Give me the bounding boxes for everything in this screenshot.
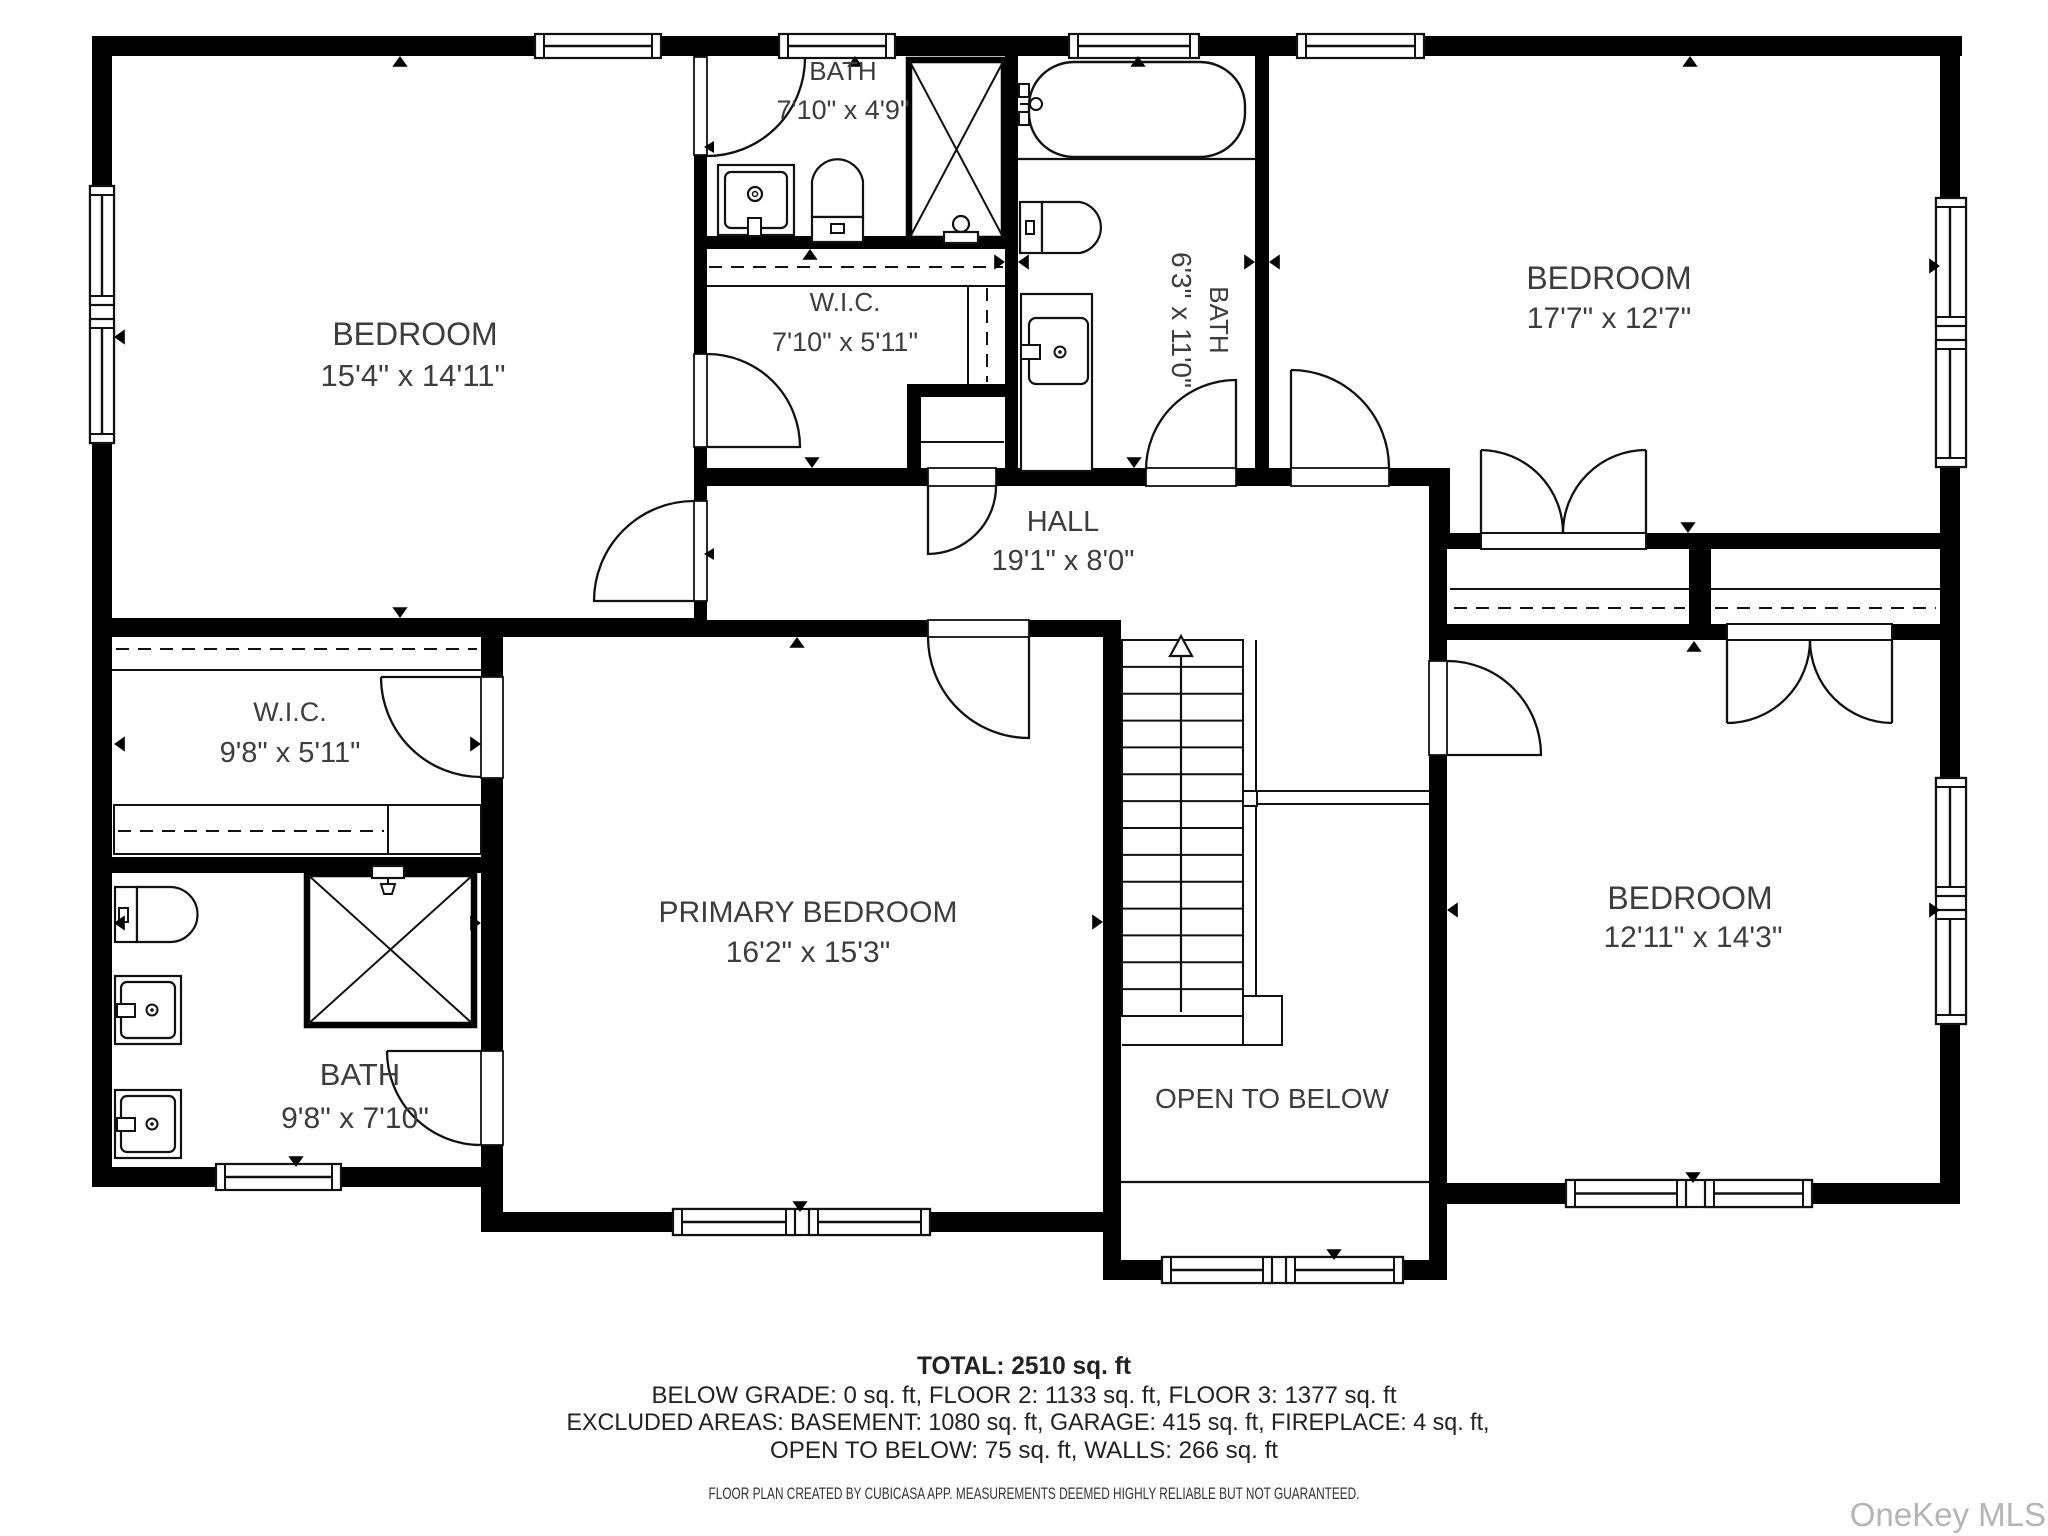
svg-text:OPEN TO BELOW: OPEN TO BELOW	[1155, 1083, 1389, 1114]
svg-text:BELOW GRADE: 0 sq. ft, FLOOR 2: BELOW GRADE: 0 sq. ft, FLOOR 2: 1133 sq.…	[652, 1382, 1397, 1409]
svg-text:BEDROOM: BEDROOM	[1526, 260, 1691, 296]
svg-text:BATH: BATH	[1204, 286, 1234, 353]
svg-text:W.I.C.: W.I.C.	[810, 287, 881, 317]
svg-text:BATH: BATH	[809, 56, 876, 86]
svg-text:TOTAL: 2510 sq. ft: TOTAL: 2510 sq. ft	[917, 1352, 1132, 1380]
svg-text:HALL: HALL	[1027, 506, 1100, 538]
svg-text:BATH: BATH	[320, 1057, 400, 1092]
svg-text:12'11" x 14'3": 12'11" x 14'3"	[1604, 921, 1783, 954]
svg-text:EXCLUDED AREAS: BASEMENT: 1080: EXCLUDED AREAS: BASEMENT: 1080 sq. ft, G…	[567, 1409, 1490, 1436]
svg-text:BEDROOM: BEDROOM	[1607, 880, 1772, 916]
svg-text:7'10" x 4'9": 7'10" x 4'9"	[776, 95, 909, 125]
svg-text:W.I.C.: W.I.C.	[253, 697, 327, 727]
svg-text:7'10" x 5'11": 7'10" x 5'11"	[772, 327, 918, 357]
svg-text:9'8" x 5'11": 9'8" x 5'11"	[220, 737, 361, 769]
svg-text:6'3" x 11'0": 6'3" x 11'0"	[1166, 252, 1197, 388]
svg-text:17'7" x 12'7": 17'7" x 12'7"	[1527, 302, 1692, 335]
svg-text:15'4" x 14'11": 15'4" x 14'11"	[321, 358, 506, 393]
svg-text:FLOOR PLAN CREATED BY CUBICASA: FLOOR PLAN CREATED BY CUBICASA APP. MEAS…	[709, 1484, 1360, 1503]
svg-text:9'8" x 7'10": 9'8" x 7'10"	[281, 1102, 429, 1135]
svg-text:OneKey MLS: OneKey MLS	[1850, 1496, 2046, 1533]
svg-text:PRIMARY BEDROOM: PRIMARY BEDROOM	[659, 896, 958, 929]
svg-text:16'2" x 15'3": 16'2" x 15'3"	[726, 936, 891, 969]
svg-text:19'1" x 8'0": 19'1" x 8'0"	[992, 545, 1135, 577]
svg-text:OPEN TO BELOW: 75 sq. ft, WALL: OPEN TO BELOW: 75 sq. ft, WALLS: 266 sq.…	[770, 1437, 1278, 1464]
svg-text:BEDROOM: BEDROOM	[332, 316, 497, 352]
